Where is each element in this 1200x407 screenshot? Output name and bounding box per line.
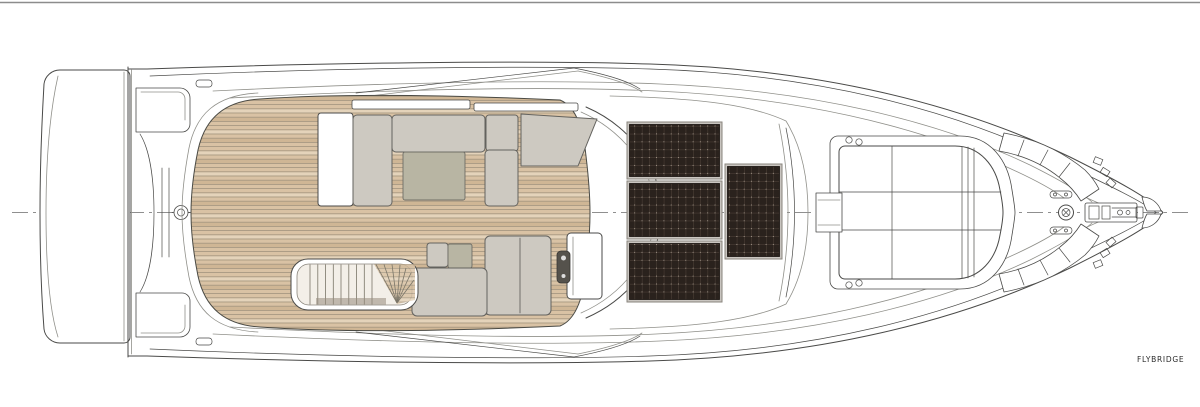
solar-panel-3 — [627, 241, 722, 302]
starboard-cushion-small — [427, 243, 448, 267]
bow-cleat — [1050, 191, 1072, 198]
foredeck — [816, 136, 1015, 289]
transom-gate-curve — [140, 134, 154, 292]
sun-lounger — [318, 113, 353, 206]
helm-console — [567, 233, 602, 299]
steering-wheel — [557, 251, 570, 283]
port-table — [403, 152, 465, 200]
solar-panel-1 — [627, 122, 722, 179]
swim-platform — [40, 70, 130, 343]
hardtop-rail — [474, 103, 578, 111]
solar-panel-2 — [627, 181, 722, 239]
starboard-sofa-bottom — [412, 268, 487, 316]
port-sofa-back — [353, 115, 392, 206]
aft-deck-step — [136, 88, 190, 132]
deck-plan-drawing: FLYBRIDGE — [0, 0, 1200, 407]
staircase — [291, 259, 418, 310]
starboard-seat-wide — [485, 236, 551, 315]
port-sofa-corner — [486, 115, 518, 151]
stair-tread-strip — [316, 298, 386, 305]
flybridge-label: FLYBRIDGE — [1137, 355, 1184, 364]
aft-cleat — [196, 80, 212, 87]
bow-bench — [999, 133, 1099, 201]
solar-panel-4 — [725, 164, 782, 259]
transom-fitting — [174, 206, 188, 220]
port-sofa-side — [485, 150, 518, 206]
bow-sunpad — [839, 146, 1003, 279]
port-sofa-top — [392, 115, 485, 152]
foredeck-console — [816, 193, 842, 232]
hardtop-rail — [352, 100, 470, 109]
solar-panel-array — [627, 122, 782, 302]
starboard-table — [448, 244, 472, 268]
flybridge-deck-plan: FLYBRIDGE — [0, 0, 1200, 407]
